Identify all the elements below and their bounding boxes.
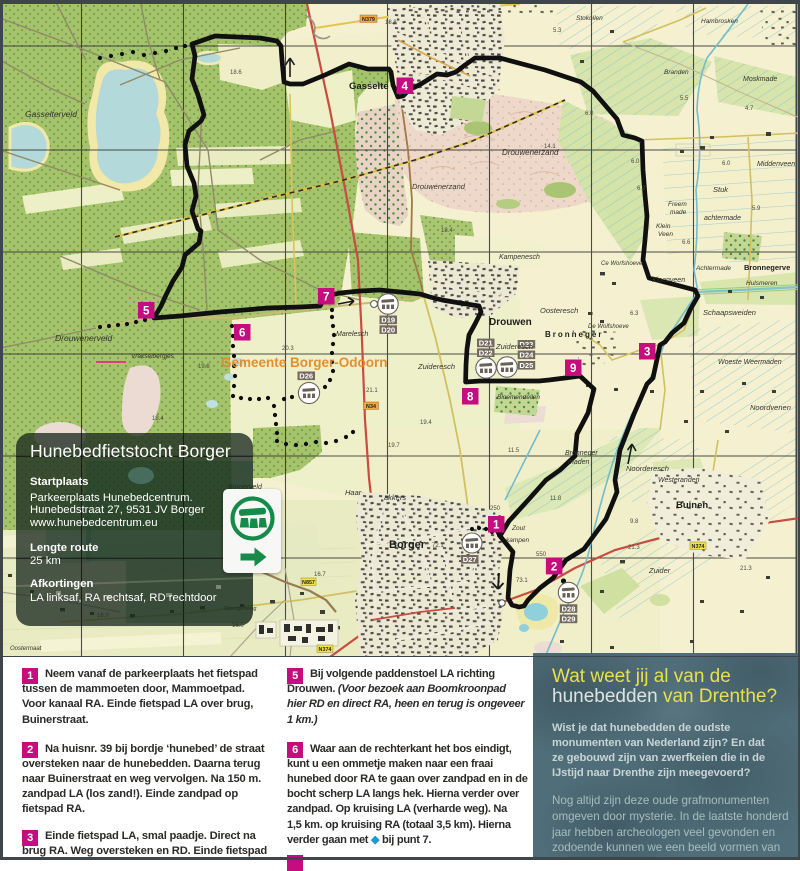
- svg-text:Stokollen: Stokollen: [576, 15, 603, 22]
- svg-text:D22: D22: [479, 348, 493, 357]
- svg-text:Drouwenerveld: Drouwenerveld: [55, 333, 112, 343]
- svg-text:2: 2: [551, 561, 557, 573]
- svg-text:Noordvenen: Noordvenen: [750, 403, 791, 412]
- svg-text:14.1: 14.1: [544, 144, 556, 150]
- svg-text:1: 1: [493, 519, 500, 531]
- svg-text:Vrakselbergjes: Vrakselbergjes: [131, 353, 175, 360]
- svg-text:Gemeente Borger-Odoorn: Gemeente Borger-Odoorn: [221, 355, 388, 370]
- svg-text:D27: D27: [463, 555, 477, 564]
- svg-text:21.3: 21.3: [740, 566, 752, 572]
- svg-text:11.8: 11.8: [550, 496, 562, 502]
- svg-text:19.4: 19.4: [420, 420, 432, 426]
- svg-text:20.3: 20.3: [282, 346, 294, 352]
- svg-text:D21: D21: [479, 339, 494, 348]
- svg-text:5.9: 5.9: [752, 206, 761, 212]
- svg-text:Veen: Veen: [658, 231, 673, 238]
- svg-text:maden: maden: [568, 459, 590, 466]
- svg-text:6.0: 6.0: [585, 111, 594, 117]
- svg-text:N34: N34: [366, 404, 376, 410]
- svg-text:6.0: 6.0: [631, 159, 640, 165]
- svg-text:Bronneger: Bronneger: [565, 450, 598, 457]
- svg-text:Hambrosken: Hambrosken: [701, 18, 738, 25]
- svg-text:21.1: 21.1: [366, 388, 378, 394]
- svg-text:D20: D20: [381, 325, 395, 334]
- svg-text:Marelesch: Marelesch: [336, 331, 368, 338]
- svg-text:Freem: Freem: [668, 201, 687, 208]
- svg-text:achtermade: achtermade: [704, 215, 741, 222]
- svg-text:Gasselte: Gasselte: [349, 81, 389, 92]
- svg-text:Stuk: Stuk: [713, 185, 729, 194]
- svg-text:21.3: 21.3: [628, 545, 640, 551]
- svg-text:Branden: Branden: [664, 69, 689, 76]
- svg-text:19.7: 19.7: [388, 443, 400, 449]
- svg-text:5.5: 5.5: [680, 96, 689, 102]
- svg-text:72.1: 72.1: [432, 543, 444, 549]
- svg-text:Klein: Klein: [656, 223, 671, 230]
- svg-text:5.3: 5.3: [553, 28, 562, 34]
- svg-text:Zuider: Zuider: [648, 566, 671, 575]
- svg-text:Woeste Weermaden: Woeste Weermaden: [718, 359, 782, 366]
- svg-text:Zuideresch: Zuideresch: [495, 342, 533, 351]
- svg-text:4: 4: [401, 81, 408, 93]
- svg-text:D28: D28: [562, 604, 576, 613]
- svg-text:D24: D24: [519, 351, 534, 360]
- svg-text:D25: D25: [519, 361, 534, 370]
- svg-text:D19: D19: [381, 316, 395, 325]
- svg-text:19.8: 19.8: [198, 364, 210, 370]
- svg-text:Gasselterveld: Gasselterveld: [25, 109, 77, 119]
- svg-text:Noorderesch: Noorderesch: [626, 464, 669, 473]
- svg-text:4.7: 4.7: [745, 106, 754, 112]
- svg-text:6.6: 6.6: [682, 240, 691, 246]
- svg-text:18.6: 18.6: [230, 70, 242, 76]
- svg-text:8: 8: [467, 391, 474, 403]
- svg-text:Oosteresch: Oosteresch: [540, 306, 578, 315]
- svg-text:Zuideresch: Zuideresch: [417, 362, 455, 371]
- svg-text:550: 550: [536, 552, 547, 558]
- svg-text:16.7: 16.7: [314, 572, 326, 578]
- svg-text:Achtermade: Achtermade: [695, 265, 731, 272]
- svg-text:18.4: 18.4: [441, 228, 453, 234]
- svg-text:D29: D29: [562, 615, 576, 624]
- svg-text:N374: N374: [319, 647, 332, 653]
- svg-text:Schaapsweiden: Schaapsweiden: [703, 308, 756, 317]
- svg-text:Haar: Haar: [345, 488, 362, 497]
- svg-text:Buinen: Buinen: [676, 500, 708, 511]
- svg-text:Middenveen: Middenveen: [757, 161, 795, 168]
- svg-text:Drouwen: Drouwen: [489, 317, 532, 328]
- svg-text:Bronneger: Bronneger: [545, 330, 603, 339]
- svg-text:Ce Worfshoeve: Ce Worfshoeve: [601, 261, 643, 267]
- svg-text:6.2: 6.2: [637, 186, 646, 192]
- svg-text:Borger: Borger: [389, 539, 426, 551]
- svg-text:Bronnegerve: Bronnegerve: [744, 263, 790, 272]
- svg-text:Moskmade: Moskmade: [743, 76, 777, 83]
- svg-text:Hulsmeren: Hulsmeren: [746, 280, 778, 287]
- svg-text:Bloemendellen: Bloemendellen: [497, 394, 540, 401]
- svg-text:7: 7: [323, 291, 329, 303]
- svg-text:Kampenesch: Kampenesch: [499, 254, 540, 261]
- svg-text:73.1: 73.1: [516, 578, 528, 584]
- svg-text:3: 3: [644, 346, 650, 358]
- svg-text:D26: D26: [299, 372, 313, 381]
- svg-text:5: 5: [143, 305, 150, 317]
- svg-text:Oostermaat: Oostermaat: [10, 646, 42, 652]
- svg-text:Drouwenerzand: Drouwenerzand: [412, 182, 466, 191]
- svg-text:akkers: akkers: [384, 493, 406, 502]
- svg-text:kampen: kampen: [506, 537, 530, 544]
- svg-text:11.5: 11.5: [508, 448, 520, 454]
- svg-text:made: made: [670, 209, 687, 216]
- svg-text:N374: N374: [692, 544, 705, 550]
- svg-text:18.8: 18.8: [385, 20, 397, 26]
- svg-text:18.4: 18.4: [152, 416, 164, 422]
- svg-text:9: 9: [570, 363, 576, 375]
- svg-text:De Wolfshoeve: De Wolfshoeve: [588, 324, 629, 330]
- svg-text:Kloenveen: Kloenveen: [652, 277, 685, 284]
- svg-text:6.3: 6.3: [630, 311, 639, 317]
- svg-text:Westeranden: Westeranden: [658, 477, 700, 484]
- svg-text:N857: N857: [302, 580, 315, 586]
- svg-text:6: 6: [239, 327, 245, 339]
- svg-text:N379: N379: [362, 17, 375, 23]
- svg-text:6.0: 6.0: [722, 161, 731, 167]
- svg-text:9.8: 9.8: [630, 519, 639, 525]
- svg-text:250: 250: [490, 506, 501, 512]
- svg-text:Zout: Zout: [511, 525, 526, 532]
